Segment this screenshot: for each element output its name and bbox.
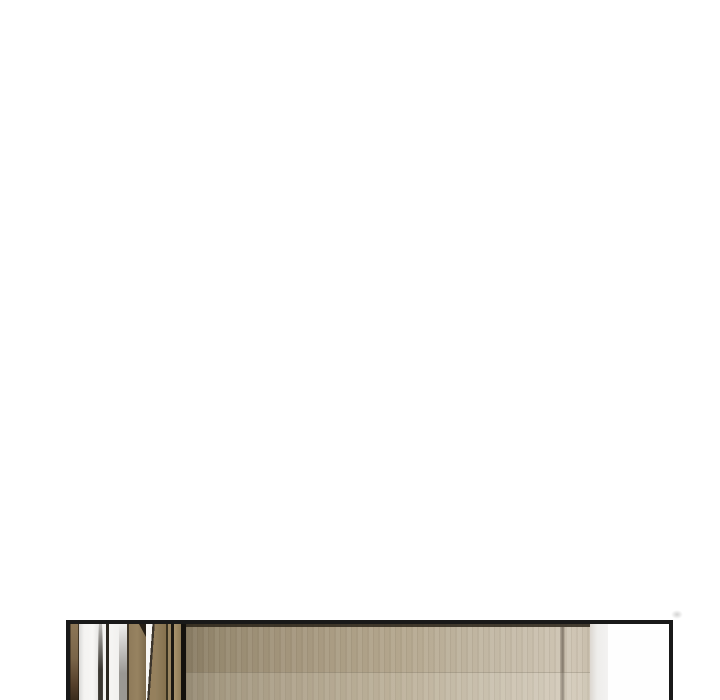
hallway-wood-pillar <box>70 624 79 700</box>
comic-panel-image <box>66 620 673 700</box>
open-door-edge-wedge <box>146 624 156 700</box>
corner-smudge-artifact <box>671 610 683 619</box>
panel-artwork <box>70 624 669 700</box>
reader-viewport <box>0 0 720 700</box>
door-vertical-seam <box>560 627 565 700</box>
doorframe-wood-strip <box>127 624 146 700</box>
right-white-margin <box>608 624 669 700</box>
hallway-white-wall <box>79 624 99 700</box>
floor-shadow-mark-2 <box>119 624 127 700</box>
wood-door-panel <box>186 624 590 700</box>
doorframe-wood-strip-2 <box>156 624 166 700</box>
door-top-shadow-notch <box>139 624 146 637</box>
right-wall-gray-strip <box>590 624 608 700</box>
doorframe-wood-strip-3 <box>174 624 181 700</box>
floor-shadow-mark <box>98 624 103 700</box>
